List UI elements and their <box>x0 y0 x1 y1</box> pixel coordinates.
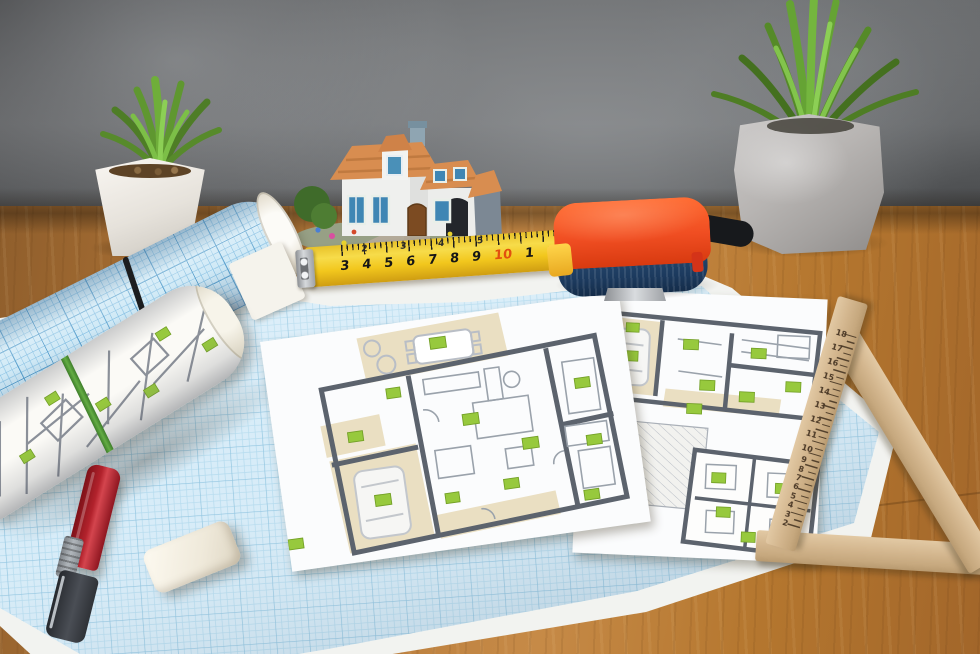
scale-number: 4 <box>787 500 795 510</box>
case-top-orange <box>552 196 711 270</box>
photo-canvas: 2345 345678910123 2345678910111213141516… <box>0 0 980 654</box>
scale-number: 9 <box>800 455 808 465</box>
scale-number: 1 <box>524 246 534 262</box>
scale-number: 6 <box>792 482 800 492</box>
case-yellow-latch <box>546 243 573 277</box>
scale-number: 3 <box>340 258 350 274</box>
scale-number: 4 <box>362 257 372 273</box>
scale-number: 3 <box>784 509 792 519</box>
case-red-button <box>691 252 703 273</box>
tape-measure-case <box>552 200 716 298</box>
scale-number: 10 <box>493 247 512 263</box>
scale-number: 5 <box>476 236 483 247</box>
scale-number: 2 <box>361 244 368 255</box>
case-belt-clip <box>604 288 666 301</box>
scale-number: 7 <box>795 473 803 483</box>
scale-number: 6 <box>406 254 416 270</box>
scale-number: 4 <box>438 239 445 250</box>
scale-number: 8 <box>797 464 805 474</box>
scale-number: 9 <box>472 249 482 265</box>
scale-number: 5 <box>384 255 394 271</box>
scale-number: 3 <box>399 241 406 252</box>
scale-number: 7 <box>428 252 438 268</box>
tape-hook <box>295 249 316 288</box>
scale-number: 5 <box>789 491 797 501</box>
scale-number: 8 <box>450 251 460 267</box>
